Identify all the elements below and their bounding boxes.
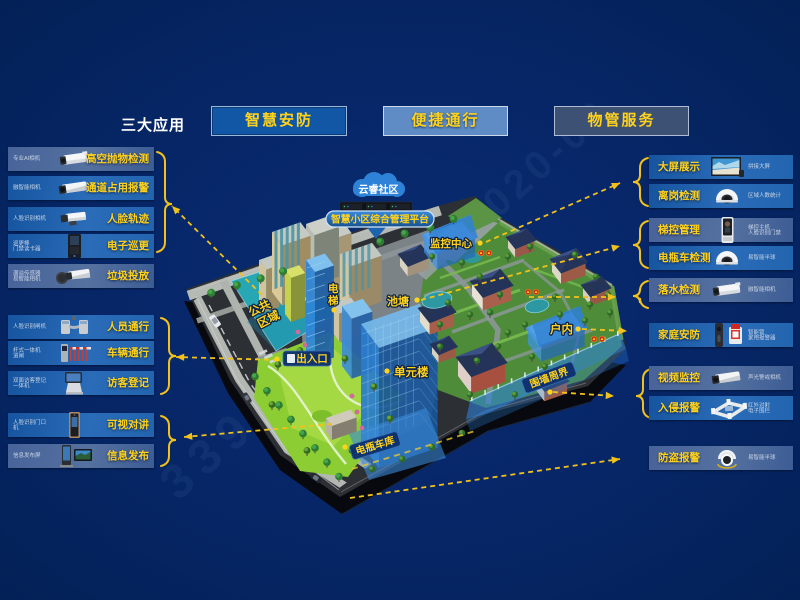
svg-text:监控中心: 监控中心 <box>430 237 472 250</box>
svg-text:云睿社区: 云睿社区 <box>359 183 399 196</box>
svg-text:出入口: 出入口 <box>296 352 328 365</box>
svg-text:梯: 梯 <box>328 294 339 307</box>
svg-text:池塘: 池塘 <box>387 294 409 308</box>
svg-text:户内: 户内 <box>550 322 573 336</box>
svg-text:单元楼: 单元楼 <box>394 365 429 379</box>
svg-text:智慧小区综合管理平台: 智慧小区综合管理平台 <box>331 213 429 226</box>
svg-text:电: 电 <box>328 282 339 295</box>
